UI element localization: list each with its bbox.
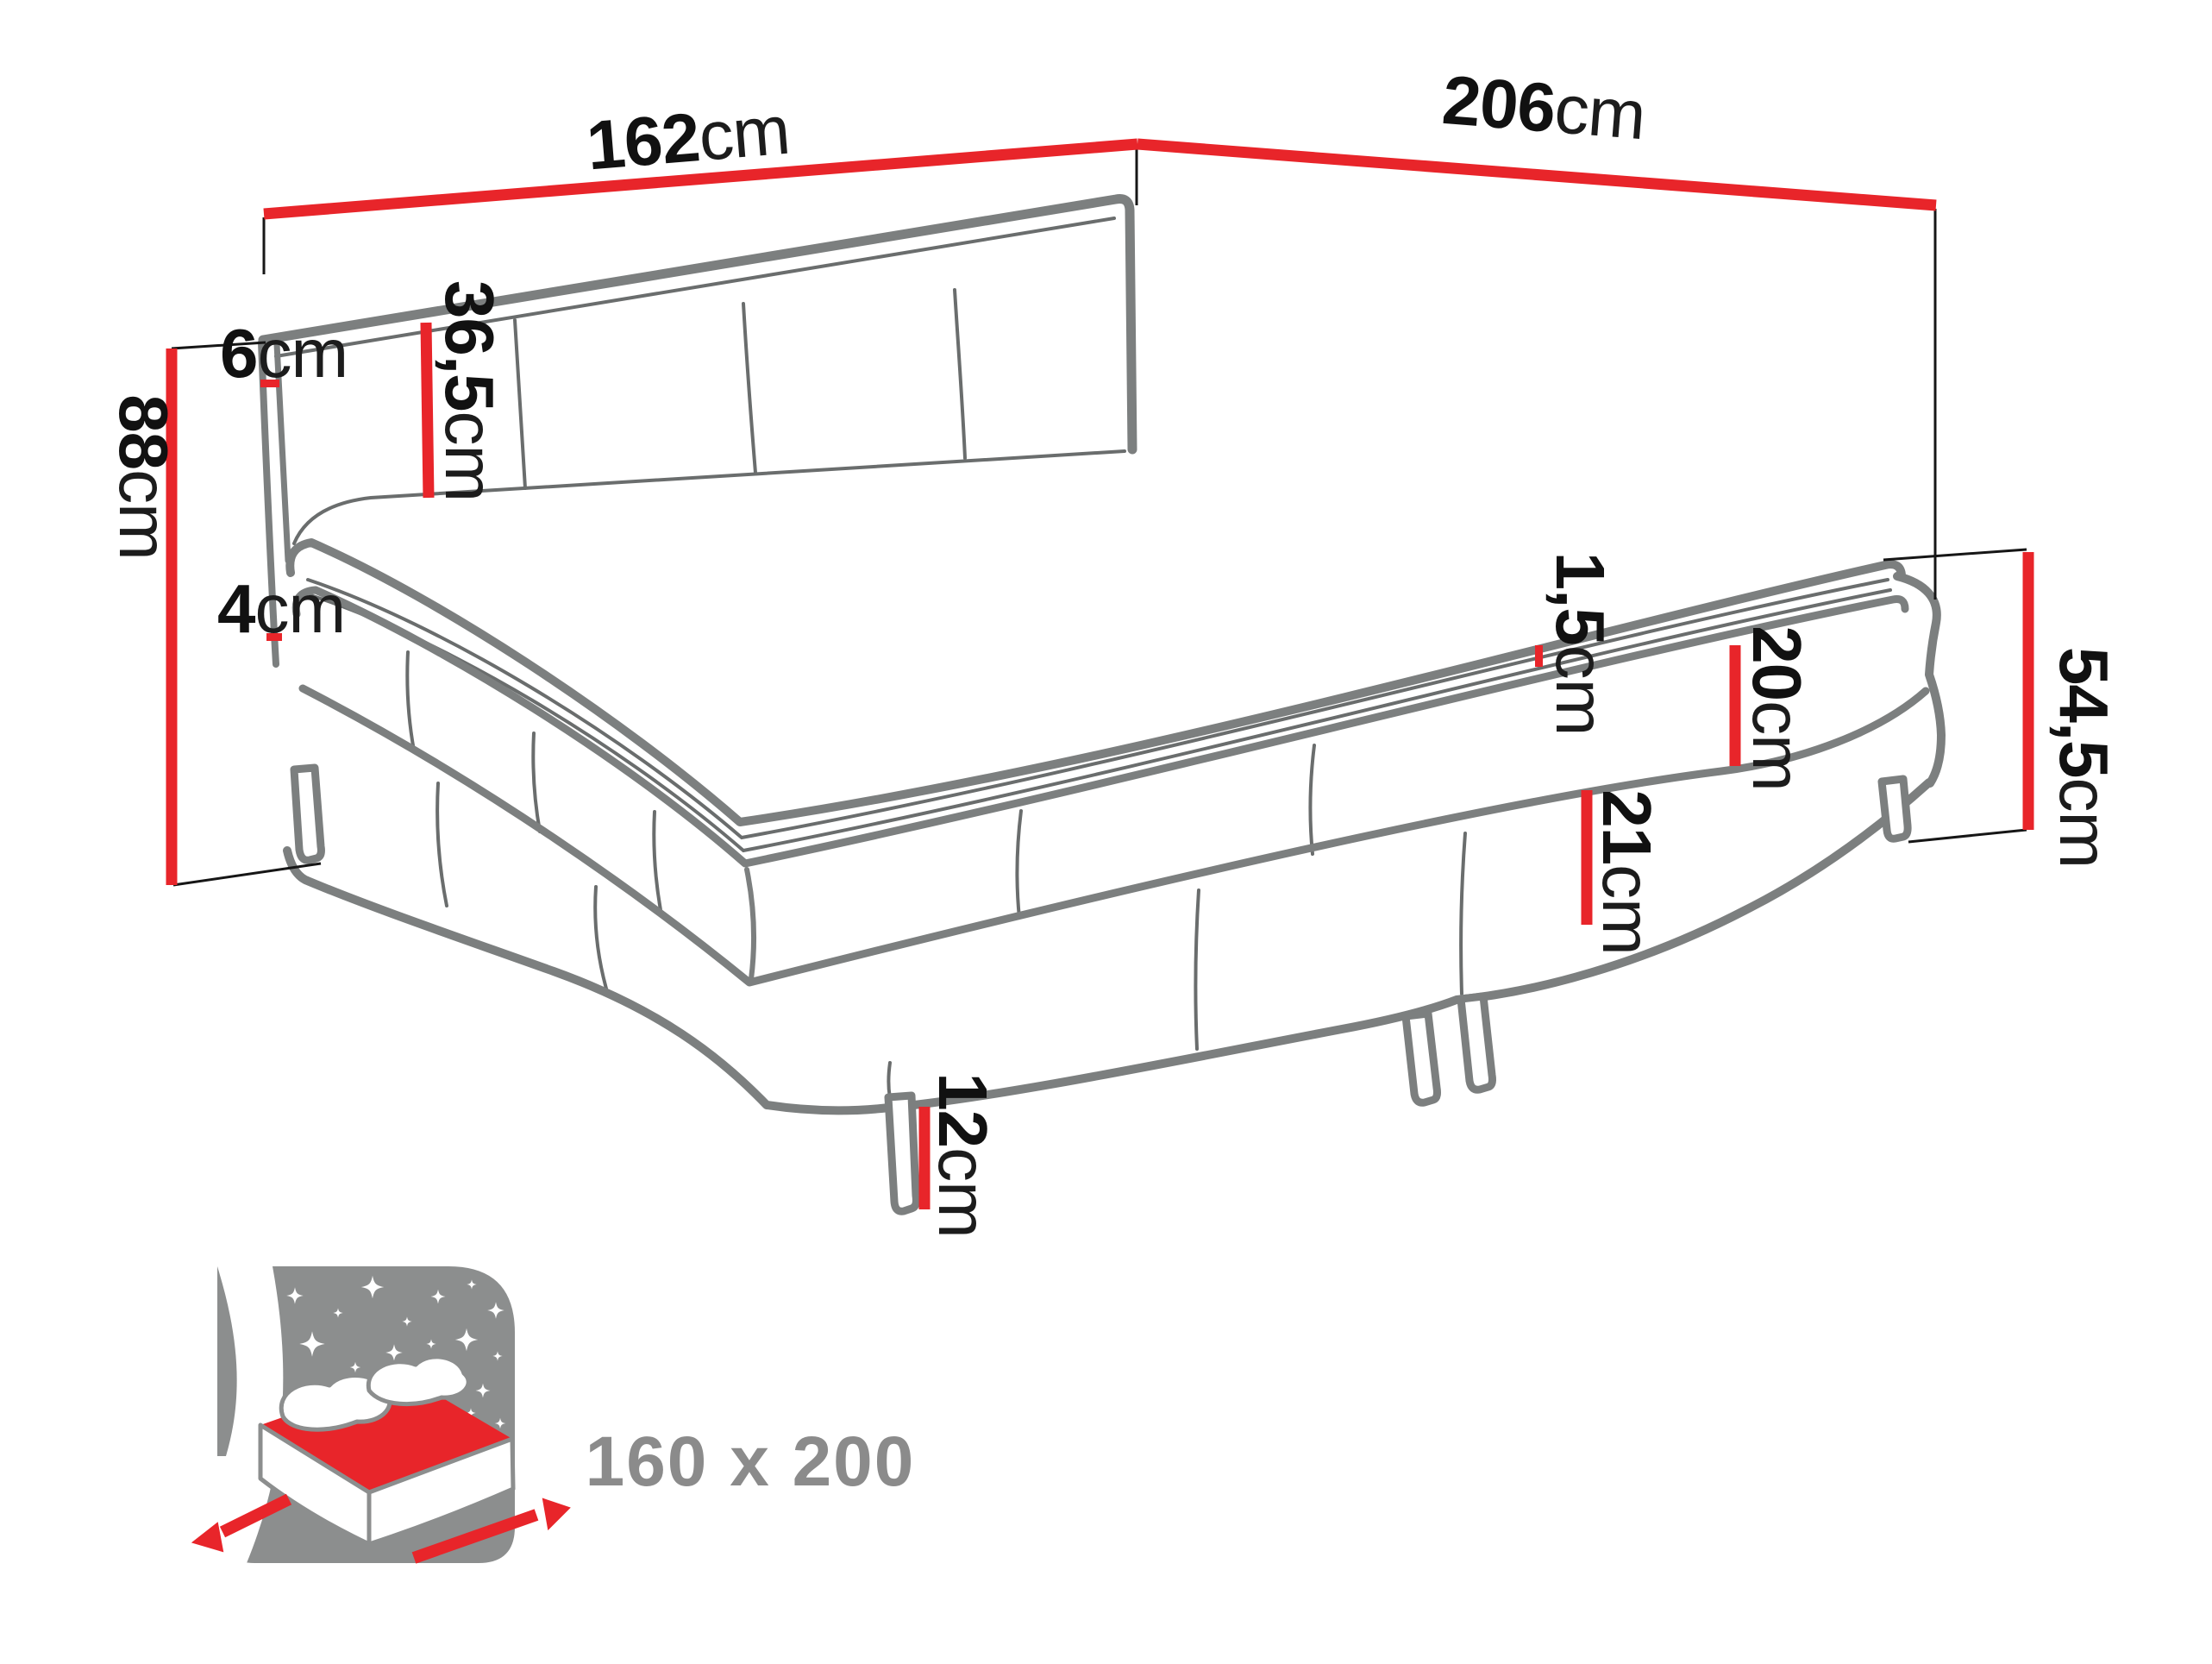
bed-bottom-edge [287,782,1929,1110]
upper-box-corner-edge [747,870,754,979]
label-headboard-depth-6: 6cm [220,315,348,392]
size-label: 160 x 200 [586,1422,916,1501]
bed-leg [294,768,321,860]
upper-box-seam [1017,811,1021,918]
upper-box-seam [654,812,661,910]
lower-box-seam [1195,890,1199,1049]
bed-leg [1882,779,1908,838]
headboard-seam [743,304,755,473]
dimension-line-headboard-36-5 [426,323,429,498]
label-topper-4: 4cm [217,570,345,647]
headboard-seam [515,320,525,488]
label-width-162: 162cm [584,91,793,185]
bed-drawing [261,199,1941,1212]
bed-leg [1461,996,1493,1089]
bed-leg [1406,1014,1438,1102]
label-leg-12: 12cm [924,1072,1001,1238]
width-arrowhead-icon [193,1523,222,1551]
bed-dimension-diagram: 162cm 206cm 88cm 36,5cm 6cm 4cm 1,5cm 20… [0,0,2212,1660]
label-side-54-5: 54,5cm [2046,647,2122,868]
projection-line [1883,549,2027,560]
label-height-88: 88cm [105,394,182,560]
label-length-206: 206cm [1439,61,1647,154]
diagram-page: 162cm 206cm 88cm 36,5cm 6cm 4cm 1,5cm 20… [0,0,2212,1660]
headboard [261,199,1132,665]
upper-box-seam [407,652,414,750]
mattress-back-edge [294,451,1125,543]
label-headboard-36-5: 36,5cm [431,280,508,501]
projection-line [1908,830,2027,842]
headboard-top-inner-line [276,218,1114,356]
bed-leg [888,1096,916,1211]
lower-box [287,576,1941,1110]
dimension-line-length-206 [1137,144,1936,205]
upper-box-seam [1310,745,1314,854]
lower-box-seam [1461,833,1465,994]
headboard-seam [955,290,965,458]
length-arrowhead-icon [543,1499,569,1529]
label-rim-1-5: 1,5cm [1542,552,1619,736]
tick-rim-1-5 [1535,645,1543,667]
size-icon [193,1266,569,1563]
upper-box [303,652,1926,983]
label-base-21: 21cm [1589,789,1665,955]
lower-box-seam [595,887,606,989]
pillow-icon [368,1357,468,1404]
upper-box-seam [533,733,540,832]
dimension-labels: 162cm 206cm 88cm 36,5cm 6cm 4cm 1,5cm 20… [105,61,2122,1238]
lower-box-seam [437,783,447,906]
label-mattress-20: 20cm [1739,625,1815,791]
